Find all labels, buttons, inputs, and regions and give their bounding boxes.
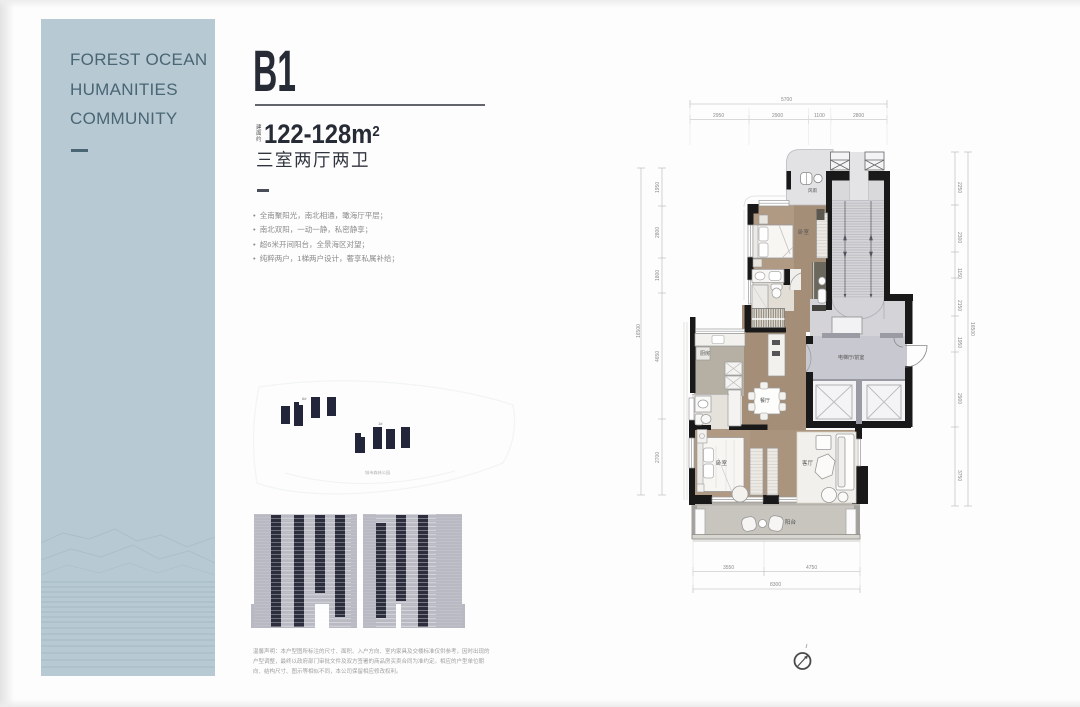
svg-text:4750: 4750 xyxy=(806,565,817,571)
svg-text:2900: 2900 xyxy=(772,113,783,119)
svg-text:2250: 2250 xyxy=(956,182,962,193)
svg-text:2150: 2150 xyxy=(956,300,962,311)
svg-text:16500: 16500 xyxy=(969,322,975,336)
svg-text:厨房: 厨房 xyxy=(700,350,710,357)
svg-text:1#: 1# xyxy=(378,421,383,426)
svg-text:8300: 8300 xyxy=(770,582,781,588)
svg-text:16500: 16500 xyxy=(636,324,642,338)
svg-text:1950: 1950 xyxy=(655,182,661,193)
svg-text:卧室: 卧室 xyxy=(716,459,728,467)
svg-text:卧室: 卧室 xyxy=(798,228,810,236)
svg-text:1100: 1100 xyxy=(814,113,825,119)
svg-text:客厅: 客厅 xyxy=(802,459,814,467)
svg-text:餐厅: 餐厅 xyxy=(760,397,770,404)
svg-text:2800: 2800 xyxy=(655,227,661,238)
svg-text:4650: 4650 xyxy=(655,351,661,362)
svg-text:1800: 1800 xyxy=(655,270,661,281)
svg-text:城市森林公园: 城市森林公园 xyxy=(365,469,390,476)
svg-text:2950: 2950 xyxy=(713,113,724,119)
svg-text:3750: 3750 xyxy=(956,470,962,481)
svg-text:阳台: 阳台 xyxy=(785,518,797,526)
svg-text:2900: 2900 xyxy=(956,393,962,404)
svg-text:1150: 1150 xyxy=(956,268,962,279)
svg-text:电梯厅/前室: 电梯厅/前室 xyxy=(838,354,864,361)
svg-text:2800: 2800 xyxy=(853,113,864,119)
svg-text:2700: 2700 xyxy=(655,452,661,463)
svg-text:2300: 2300 xyxy=(956,232,962,243)
svg-text:1950: 1950 xyxy=(956,337,962,348)
svg-text:5700: 5700 xyxy=(781,97,792,103)
svg-text:3550: 3550 xyxy=(723,565,734,571)
svg-text:6#: 6# xyxy=(302,396,307,401)
